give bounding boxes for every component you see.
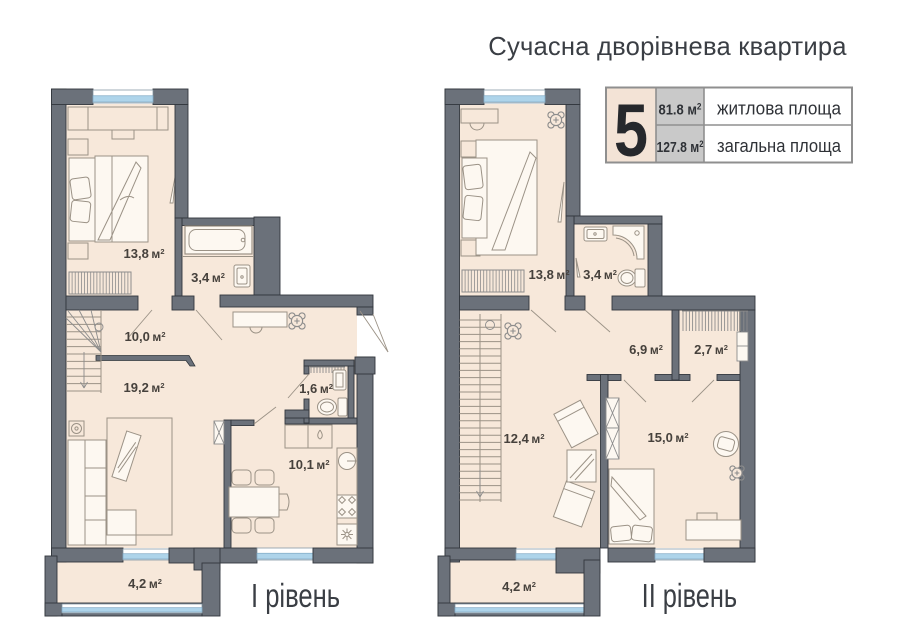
svg-text:81.8 м2: 81.8 м2 bbox=[659, 102, 702, 119]
svg-text:15,0 м2: 15,0 м2 bbox=[648, 430, 689, 445]
svg-text:127.8 м2: 127.8 м2 bbox=[657, 139, 704, 156]
svg-text:І рівень: І рівень bbox=[251, 577, 340, 614]
svg-text:12,4 м2: 12,4 м2 bbox=[504, 431, 545, 446]
svg-text:3,4 м2: 3,4 м2 bbox=[191, 270, 225, 285]
svg-text:10,0 м2: 10,0 м2 bbox=[125, 329, 166, 344]
svg-text:4,2 м2: 4,2 м2 bbox=[502, 579, 536, 594]
svg-text:1,6 м2: 1,6 м2 bbox=[299, 381, 333, 396]
svg-text:житлова площа: житлова площа bbox=[717, 99, 842, 119]
svg-text:13,8 м2: 13,8 м2 bbox=[124, 246, 165, 261]
svg-text:4,2 м2: 4,2 м2 bbox=[128, 576, 162, 591]
svg-text:3,4 м2: 3,4 м2 bbox=[583, 267, 617, 282]
svg-text:6,9 м2: 6,9 м2 bbox=[629, 342, 663, 357]
svg-text:Сучасна дворівнева квартира: Сучасна дворівнева квартира bbox=[488, 33, 847, 61]
svg-text:загальна площа: загальна площа bbox=[717, 136, 842, 156]
svg-text:13,8 м2: 13,8 м2 bbox=[529, 267, 570, 282]
svg-text:2,7 м2: 2,7 м2 bbox=[694, 342, 728, 357]
svg-text:ІІ рівень: ІІ рівень bbox=[642, 577, 738, 614]
svg-text:19,2 м2: 19,2 м2 bbox=[124, 380, 165, 395]
svg-text:5: 5 bbox=[614, 89, 648, 172]
svg-text:10,1 м2: 10,1 м2 bbox=[289, 457, 330, 472]
